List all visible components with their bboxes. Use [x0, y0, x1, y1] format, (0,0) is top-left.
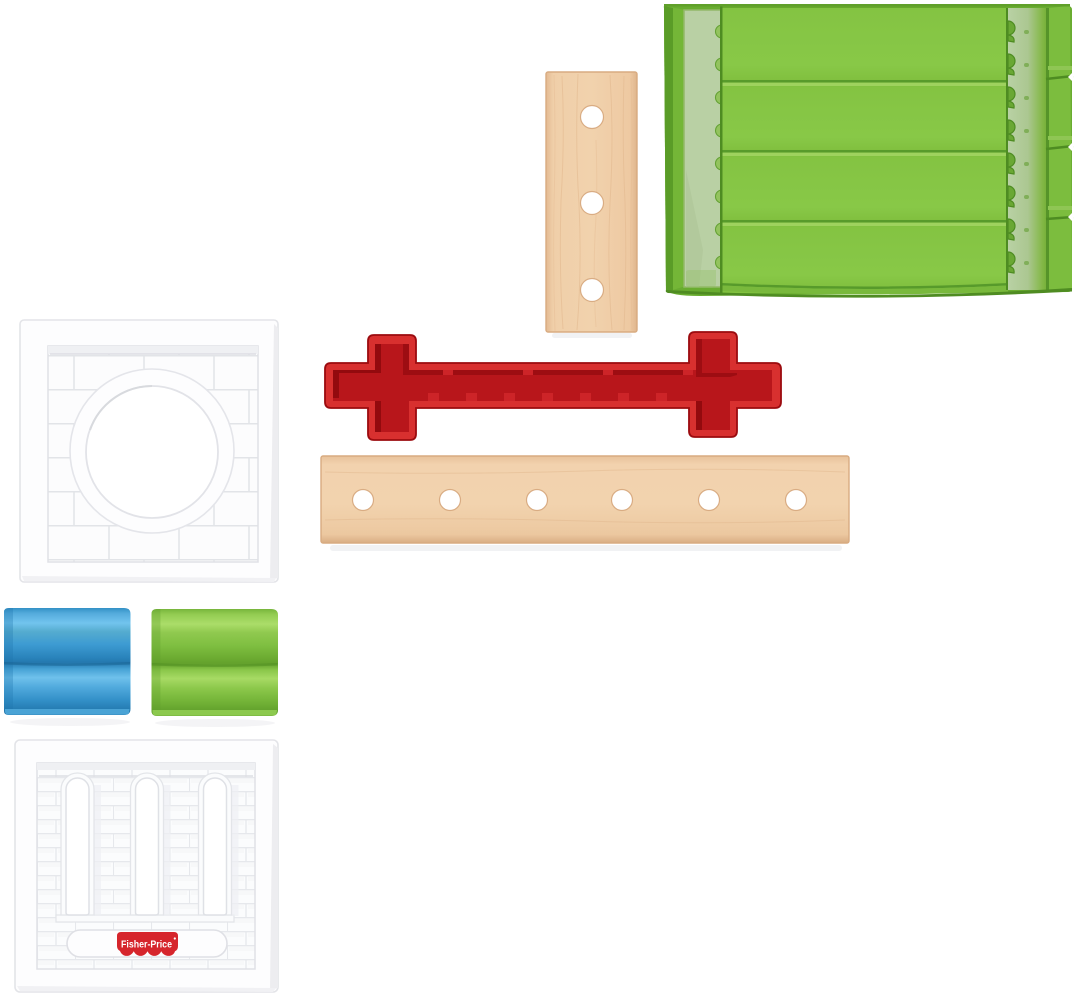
- svg-text:Fisher-Price: Fisher-Price: [121, 939, 172, 951]
